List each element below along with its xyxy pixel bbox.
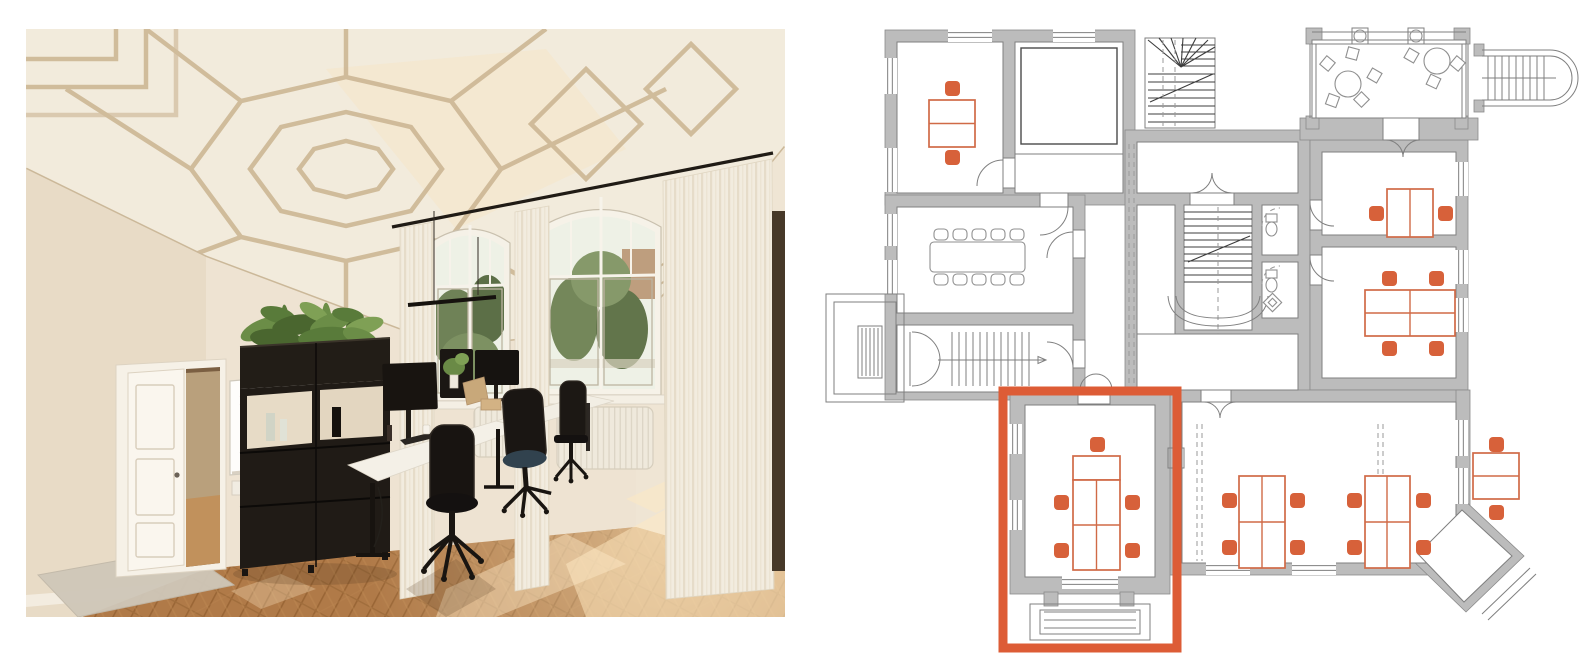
conference-table bbox=[930, 242, 1025, 272]
conference-chair bbox=[1010, 229, 1024, 240]
conference-chair bbox=[972, 274, 986, 285]
screenshot-root bbox=[0, 0, 1591, 655]
plan-chair bbox=[1429, 271, 1444, 286]
plan-room bbox=[1182, 402, 1456, 563]
plan-window bbox=[883, 58, 897, 94]
plan-room bbox=[1310, 255, 1322, 285]
conference-chair bbox=[991, 229, 1005, 240]
wc-toilet-tank bbox=[1266, 270, 1277, 278]
conference-chair bbox=[934, 274, 948, 285]
plan-room bbox=[1003, 158, 1015, 188]
plan-chair bbox=[1438, 206, 1453, 221]
plan-chair bbox=[1382, 271, 1397, 286]
plan-chair bbox=[1290, 540, 1305, 555]
plan-window bbox=[1454, 250, 1468, 284]
plan-room bbox=[1073, 340, 1085, 368]
conference-chair bbox=[934, 229, 948, 240]
plan-room bbox=[1073, 230, 1085, 258]
plan-window bbox=[1062, 575, 1118, 589]
plan-room bbox=[1137, 142, 1298, 193]
plan-chair bbox=[1222, 540, 1237, 555]
plan-room bbox=[1190, 193, 1234, 205]
plan-chair bbox=[1416, 493, 1431, 508]
plan-outline bbox=[1030, 604, 1150, 640]
plan-room bbox=[1383, 118, 1419, 140]
plan-chair bbox=[1347, 493, 1362, 508]
plan-chair bbox=[1054, 543, 1069, 558]
plan-window bbox=[1008, 500, 1022, 530]
plan-window bbox=[1454, 420, 1468, 456]
plan-window bbox=[1454, 468, 1468, 504]
plan-chair bbox=[1416, 540, 1431, 555]
terrace-table bbox=[1424, 48, 1450, 74]
plan-outline bbox=[1040, 610, 1140, 634]
plan-chair bbox=[1369, 206, 1384, 221]
conference-chair bbox=[953, 274, 967, 285]
plan-window bbox=[1292, 561, 1336, 575]
plan-window bbox=[1454, 298, 1468, 332]
plan-chair bbox=[1222, 493, 1237, 508]
wc-toilet-bowl bbox=[1266, 222, 1277, 236]
terrace-chair bbox=[1346, 47, 1359, 60]
plan-window bbox=[883, 148, 897, 192]
plan-window bbox=[1053, 28, 1095, 42]
plan-window bbox=[1454, 162, 1468, 196]
wc-toilet-tank bbox=[1266, 214, 1277, 222]
plan-chair bbox=[1347, 540, 1362, 555]
plan-room bbox=[1201, 390, 1231, 402]
plan-window bbox=[883, 214, 897, 246]
plan-window bbox=[883, 260, 897, 294]
plan-chair bbox=[1489, 505, 1504, 520]
plan-chair bbox=[1290, 493, 1305, 508]
plan-chair bbox=[1382, 341, 1397, 356]
plan-chair bbox=[945, 81, 960, 96]
plan-room bbox=[897, 325, 1073, 392]
plan-stair-line bbox=[1159, 38, 1181, 67]
conference-chair bbox=[953, 229, 967, 240]
plan-chair bbox=[1489, 437, 1504, 452]
floor-plan bbox=[0, 0, 1591, 655]
conference-chair bbox=[991, 274, 1005, 285]
conference-chair bbox=[972, 229, 986, 240]
conference-chair bbox=[1010, 274, 1024, 285]
plan-room bbox=[1040, 193, 1068, 207]
plan-room bbox=[1310, 200, 1322, 230]
plan-chair bbox=[1054, 495, 1069, 510]
plan-desk bbox=[1073, 456, 1120, 480]
plan-chair bbox=[1429, 341, 1444, 356]
plan-chair bbox=[1125, 543, 1140, 558]
plan-window bbox=[1008, 424, 1022, 454]
plan-room bbox=[1015, 42, 1123, 193]
plan-chair bbox=[1125, 495, 1140, 510]
terrace-table bbox=[1335, 71, 1361, 97]
plan-chair bbox=[1090, 437, 1105, 452]
plan-window bbox=[948, 28, 992, 42]
plan-chair bbox=[945, 150, 960, 165]
plan-room bbox=[1137, 334, 1298, 390]
wc-toilet-bowl bbox=[1266, 278, 1277, 292]
